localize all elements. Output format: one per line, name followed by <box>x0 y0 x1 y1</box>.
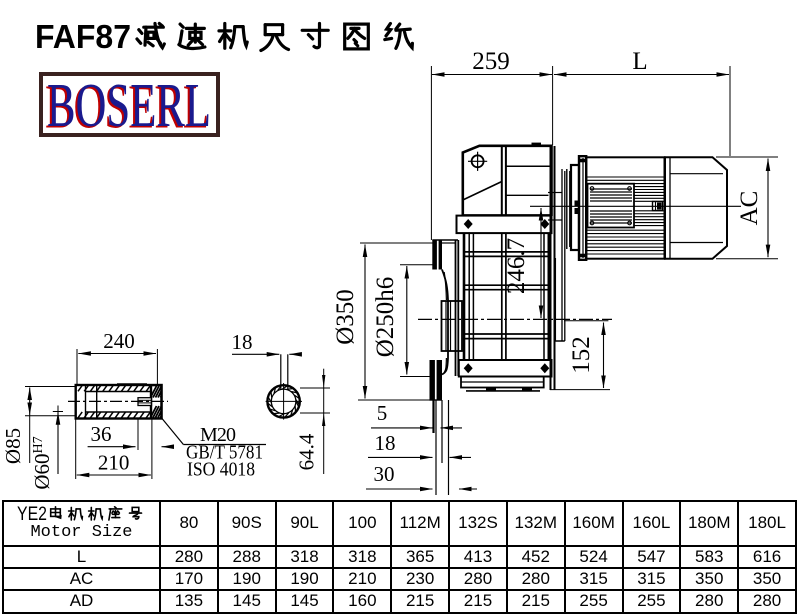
svg-text:BOSERL: BOSERL <box>47 72 211 140</box>
